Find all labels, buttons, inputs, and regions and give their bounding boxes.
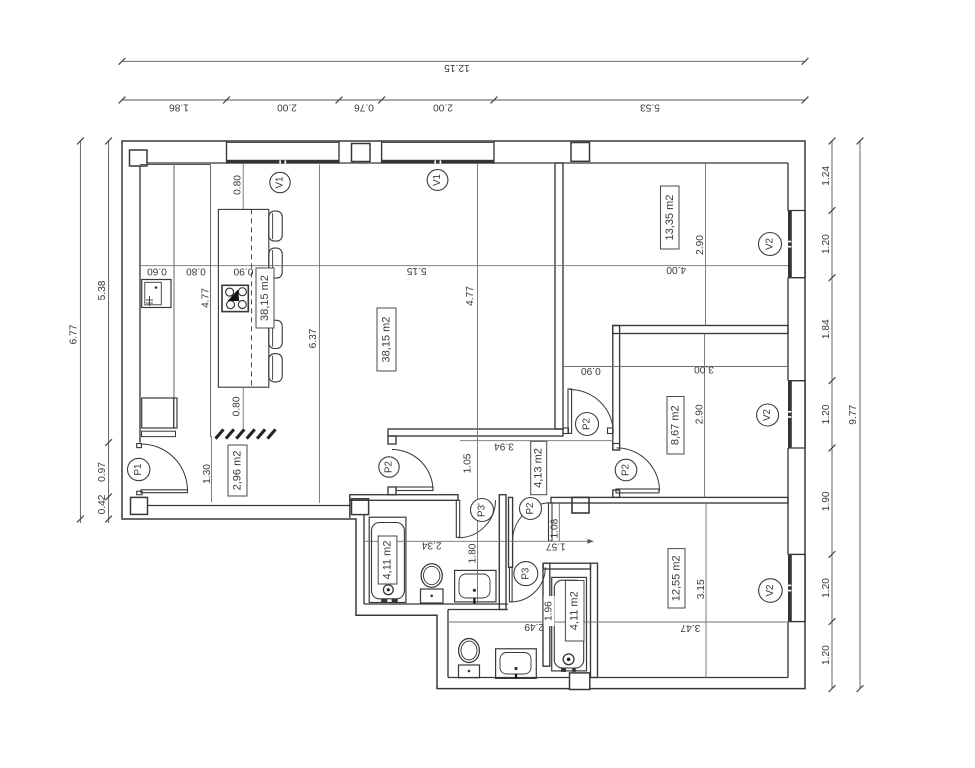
svg-text:2.49: 2.49 bbox=[524, 621, 544, 632]
svg-text:0.76: 0.76 bbox=[354, 102, 374, 113]
svg-text:0.80: 0.80 bbox=[232, 396, 243, 416]
svg-text:5.53: 5.53 bbox=[640, 102, 660, 113]
svg-text:4,11 m2: 4,11 m2 bbox=[382, 541, 394, 580]
svg-text:2.34: 2.34 bbox=[421, 540, 441, 551]
svg-text:2.00: 2.00 bbox=[277, 102, 297, 113]
svg-text:1.24: 1.24 bbox=[821, 166, 832, 186]
svg-text:6.37: 6.37 bbox=[308, 328, 319, 348]
svg-text:1.84: 1.84 bbox=[821, 319, 832, 339]
svg-text:2.90: 2.90 bbox=[695, 404, 706, 424]
svg-text:1.20: 1.20 bbox=[821, 404, 832, 424]
svg-text:0.97: 0.97 bbox=[97, 462, 108, 482]
svg-text:4,11 m2: 4,11 m2 bbox=[569, 591, 581, 630]
svg-text:3.47: 3.47 bbox=[680, 622, 700, 633]
svg-text:0.80: 0.80 bbox=[233, 175, 244, 195]
svg-text:3.94: 3.94 bbox=[494, 441, 514, 452]
svg-text:12.15: 12.15 bbox=[444, 62, 470, 73]
svg-text:4,13 m2: 4,13 m2 bbox=[533, 448, 545, 488]
svg-text:0.90: 0.90 bbox=[233, 265, 253, 276]
svg-text:4.77: 4.77 bbox=[200, 288, 211, 308]
svg-text:1.80: 1.80 bbox=[468, 543, 479, 563]
svg-text:3.00: 3.00 bbox=[694, 364, 714, 375]
svg-text:4.77: 4.77 bbox=[465, 286, 476, 306]
svg-text:0.90: 0.90 bbox=[581, 365, 601, 376]
svg-text:P2: P2 bbox=[525, 503, 536, 515]
svg-text:P2: P2 bbox=[621, 464, 632, 476]
svg-text:1.30: 1.30 bbox=[202, 464, 213, 484]
svg-text:P3': P3' bbox=[477, 503, 488, 517]
svg-text:V1: V1 bbox=[275, 177, 286, 189]
svg-text:1.20: 1.20 bbox=[821, 578, 832, 598]
svg-text:V1: V1 bbox=[432, 174, 443, 186]
svg-text:0.60: 0.60 bbox=[147, 265, 167, 276]
svg-text:13,35 m2: 13,35 m2 bbox=[664, 195, 676, 241]
svg-text:2,96 m2: 2,96 m2 bbox=[232, 451, 244, 491]
svg-text:38,15 m2: 38,15 m2 bbox=[259, 275, 271, 321]
svg-text:V2: V2 bbox=[765, 585, 776, 597]
svg-text:1.20: 1.20 bbox=[821, 645, 832, 665]
svg-text:V2: V2 bbox=[762, 409, 773, 421]
svg-text:1.96: 1.96 bbox=[543, 601, 554, 621]
svg-text:1.05: 1.05 bbox=[463, 453, 474, 473]
svg-text:2.90: 2.90 bbox=[695, 235, 706, 255]
svg-text:2.00: 2.00 bbox=[433, 102, 453, 113]
svg-text:P2: P2 bbox=[582, 418, 593, 430]
svg-text:1.86: 1.86 bbox=[169, 102, 189, 113]
svg-text:1.20: 1.20 bbox=[821, 234, 832, 254]
svg-text:5.38: 5.38 bbox=[97, 280, 108, 300]
svg-text:P3: P3 bbox=[520, 567, 531, 580]
svg-text:1.57: 1.57 bbox=[546, 541, 566, 552]
svg-text:1.08: 1.08 bbox=[550, 518, 561, 538]
svg-text:0.80: 0.80 bbox=[186, 265, 206, 276]
svg-text:P1: P1 bbox=[133, 464, 144, 476]
svg-text:12,55 m2: 12,55 m2 bbox=[671, 555, 683, 601]
svg-text:9.77: 9.77 bbox=[848, 405, 859, 425]
svg-text:1.90: 1.90 bbox=[821, 491, 832, 511]
svg-text:V2: V2 bbox=[765, 238, 776, 250]
svg-text:P2: P2 bbox=[384, 461, 395, 473]
svg-text:3.15: 3.15 bbox=[696, 579, 707, 599]
svg-text:4.00: 4.00 bbox=[666, 264, 686, 275]
svg-text:38,15 m2: 38,15 m2 bbox=[381, 317, 393, 363]
svg-text:5.15: 5.15 bbox=[406, 265, 426, 276]
svg-text:8,67 m2: 8,67 m2 bbox=[670, 405, 682, 445]
svg-text:0.42: 0.42 bbox=[97, 494, 108, 514]
svg-text:6.77: 6.77 bbox=[69, 324, 80, 344]
